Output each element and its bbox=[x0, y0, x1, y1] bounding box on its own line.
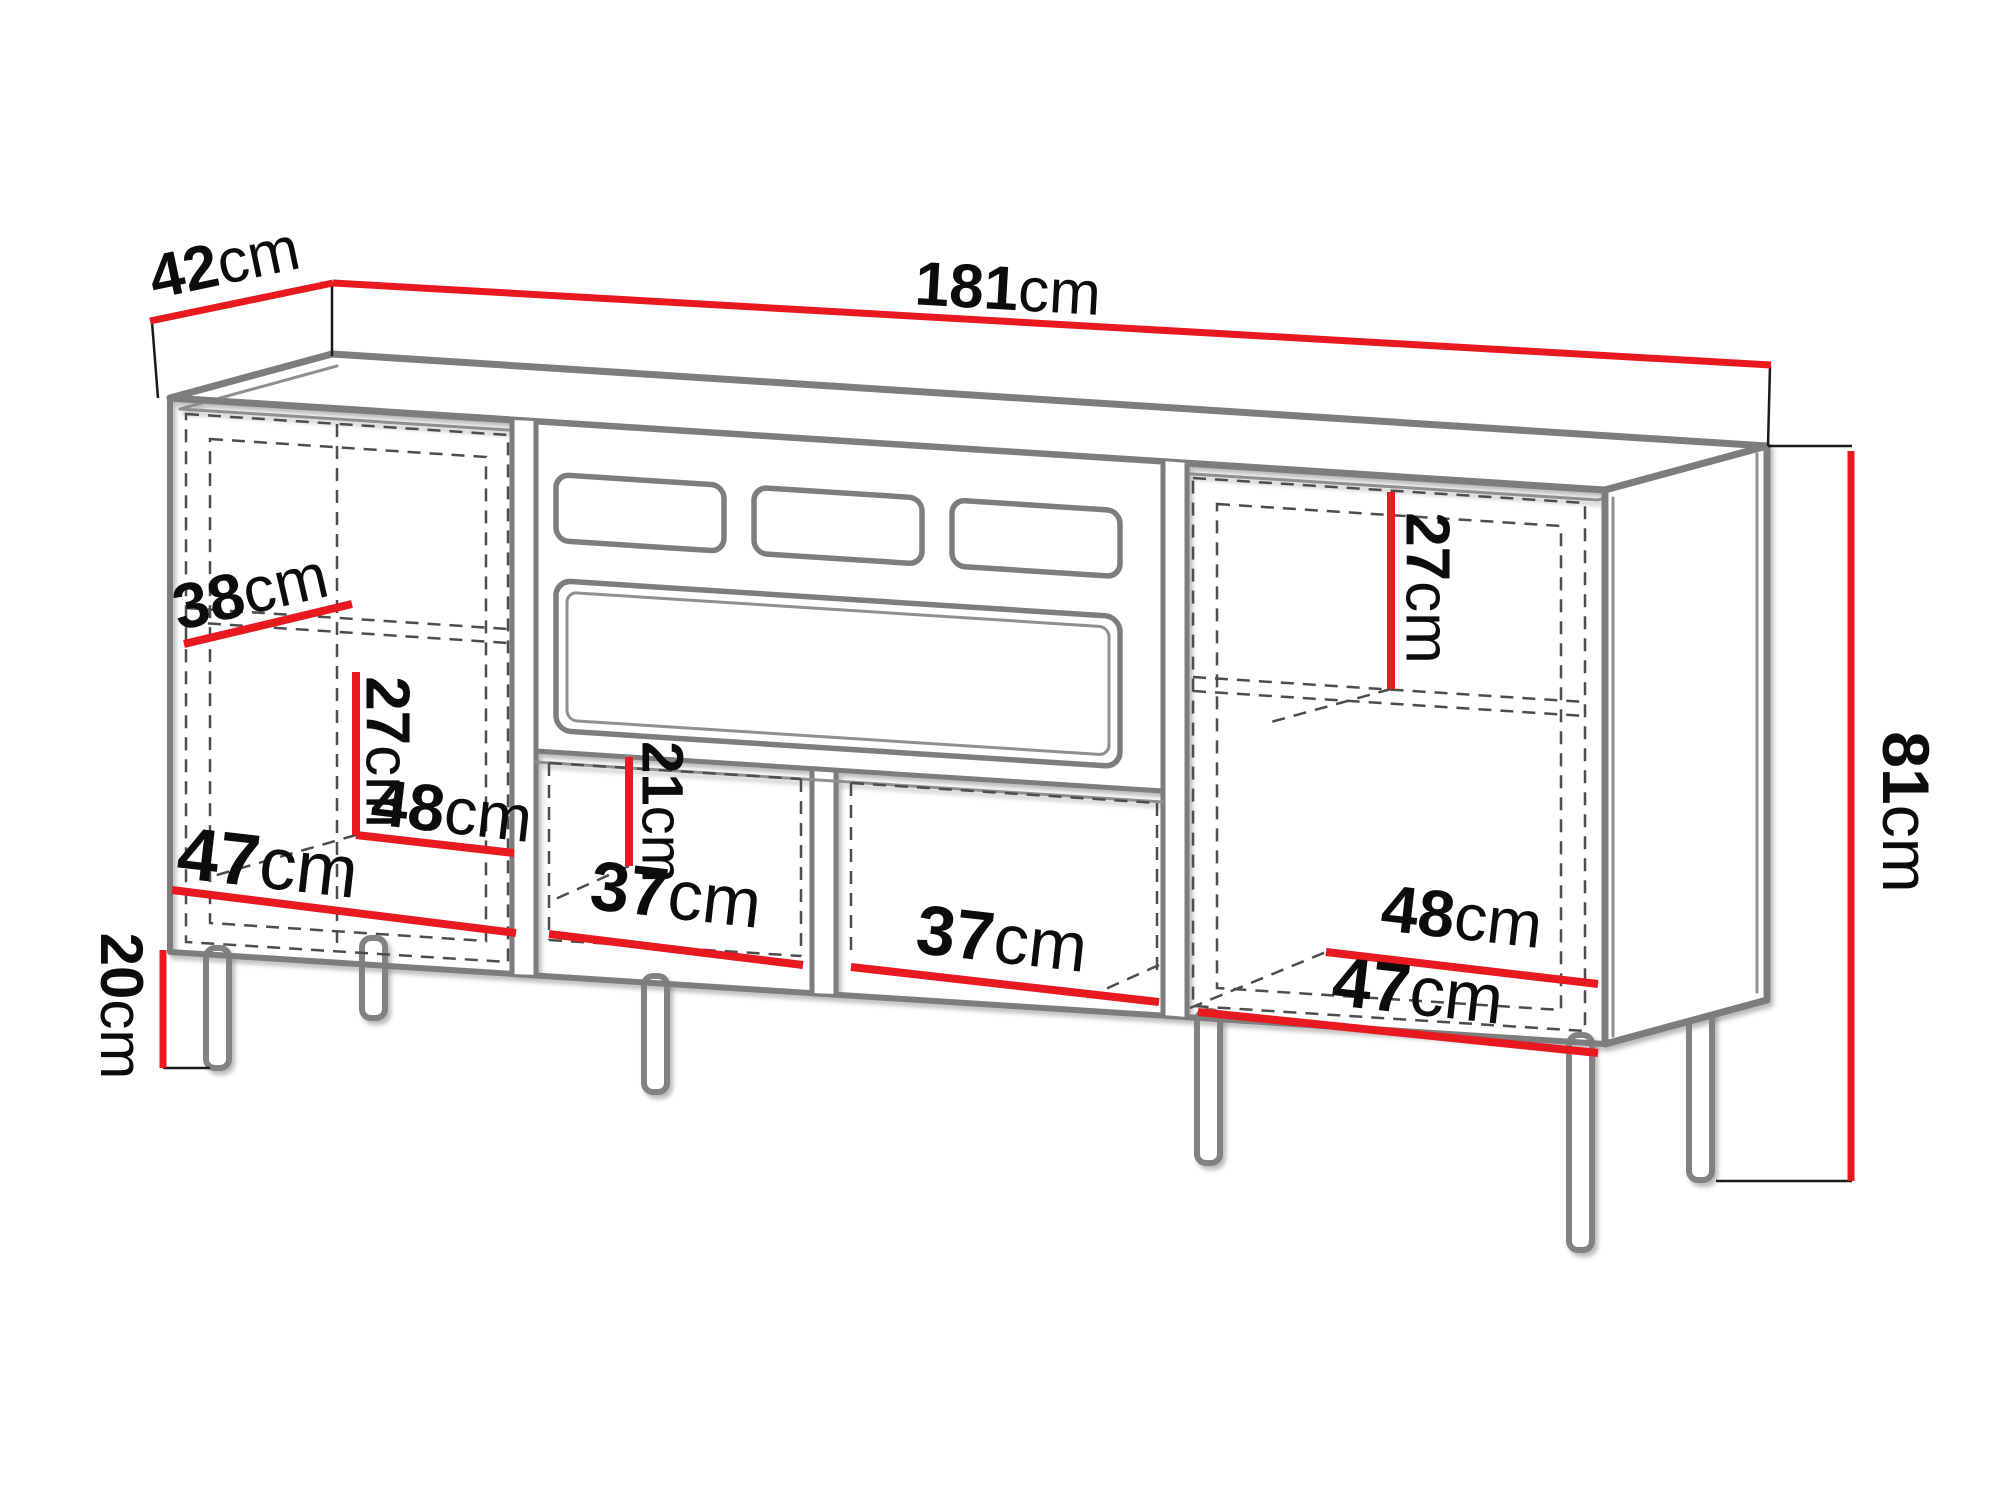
furniture-dimension-diagram: 42cm 181cm 81cm 20cm 38cm 27cm 48cm 47cm… bbox=[0, 0, 2000, 1500]
center-divider bbox=[812, 771, 836, 994]
label-mid-left-width: 37cm bbox=[586, 846, 765, 943]
svg-text:48cm: 48cm bbox=[1378, 870, 1547, 962]
svg-text:38cm: 38cm bbox=[166, 539, 335, 644]
svg-text:47cm: 47cm bbox=[173, 811, 362, 914]
fireplace-front-details bbox=[556, 475, 1120, 767]
leg-front-left bbox=[206, 948, 229, 1068]
tv-stand-diagram-svg: 42cm 181cm 81cm 20cm 38cm 27cm 48cm 47cm… bbox=[0, 0, 2000, 1500]
leg-front-midright bbox=[1197, 1011, 1220, 1163]
svg-text:37cm: 37cm bbox=[912, 890, 1091, 987]
vent-slot-2 bbox=[754, 487, 922, 564]
svg-text:42cm: 42cm bbox=[143, 214, 306, 313]
left-divider bbox=[512, 420, 536, 975]
label-width: 181cm bbox=[913, 249, 1103, 329]
svg-text:20cm: 20cm bbox=[88, 933, 155, 1080]
label-left-floor-width: 47cm bbox=[173, 811, 362, 914]
vent-slot-1 bbox=[556, 475, 724, 552]
right-shelf-depth-line bbox=[1271, 689, 1391, 722]
vent-slot-3 bbox=[952, 500, 1120, 577]
label-right-upper-height: 27cm bbox=[1392, 512, 1461, 664]
leg-front-right bbox=[1569, 1035, 1592, 1250]
leg-rear-left bbox=[362, 938, 385, 1018]
label-height: 81cm bbox=[1869, 731, 1943, 892]
label-depth: 42cm bbox=[143, 214, 306, 313]
dim-line-mid-left-width-37 bbox=[549, 934, 803, 965]
label-left-shelf-depth: 38cm bbox=[166, 539, 335, 644]
leg-front-midleft bbox=[644, 976, 667, 1092]
svg-text:37cm: 37cm bbox=[586, 846, 765, 943]
right-side-face bbox=[1605, 446, 1767, 1044]
label-leg-height: 20cm bbox=[88, 933, 155, 1080]
right-shelf-bottom-edge bbox=[1193, 691, 1585, 716]
svg-text:181cm: 181cm bbox=[913, 249, 1103, 329]
right-divider bbox=[1163, 461, 1187, 1017]
label-mid-right-width: 37cm bbox=[912, 890, 1091, 987]
label-right-shelf-width: 48cm bbox=[1378, 870, 1547, 962]
svg-text:27cm: 27cm bbox=[1392, 512, 1461, 664]
svg-text:81cm: 81cm bbox=[1869, 731, 1943, 892]
